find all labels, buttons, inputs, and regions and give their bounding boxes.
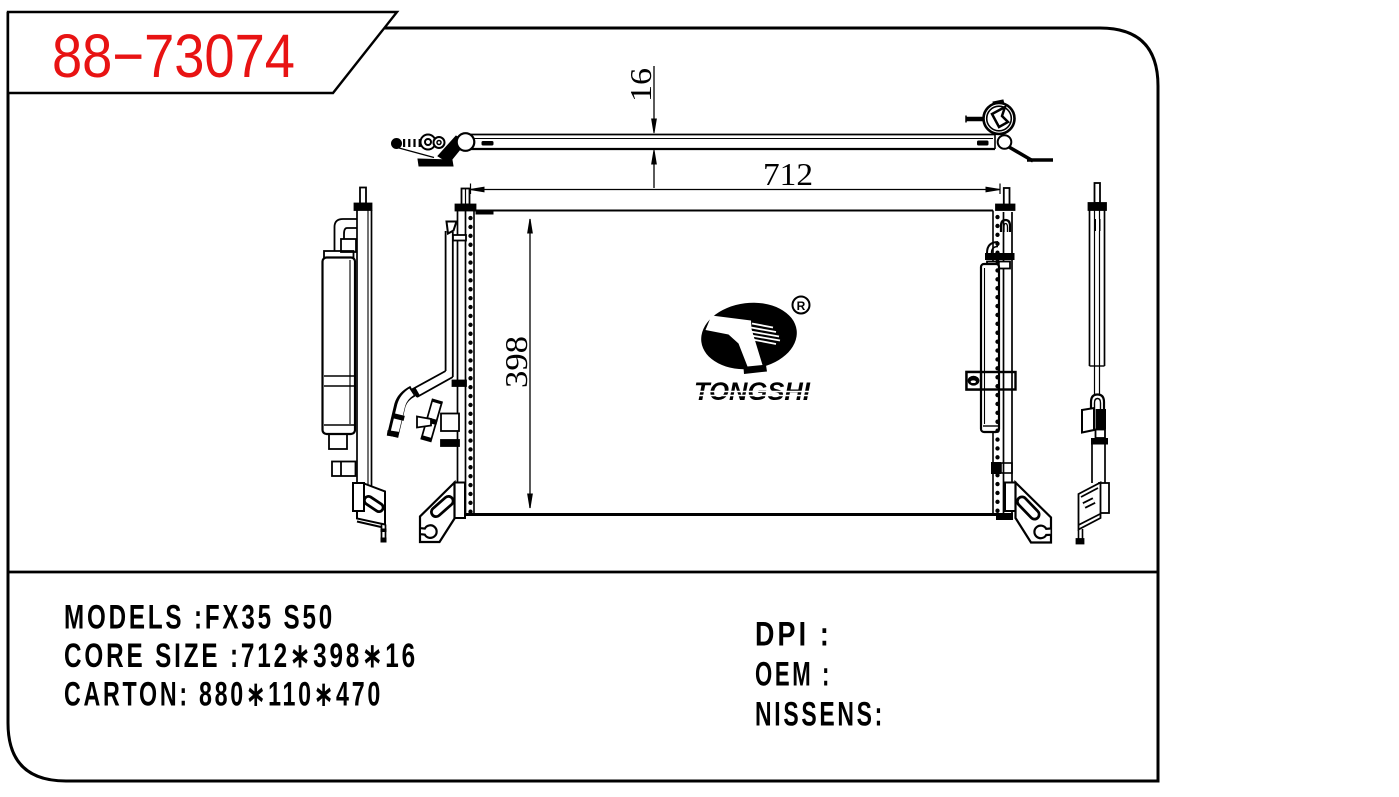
svg-text:CORE SIZE :712∗398∗16: CORE SIZE :712∗398∗16: [64, 637, 418, 675]
svg-text:MODELS :FX35 S50: MODELS :FX35 S50: [64, 599, 335, 637]
svg-text:88−73074: 88−73074: [52, 22, 295, 90]
svg-text:398: 398: [498, 336, 534, 388]
svg-text:OEM :: OEM :: [755, 656, 832, 694]
svg-text:NISSENS:: NISSENS:: [755, 696, 885, 734]
svg-text:DPI :: DPI :: [755, 616, 832, 654]
svg-text:712: 712: [763, 156, 813, 192]
svg-text:16: 16: [623, 68, 658, 102]
svg-text:CARTON: 880∗110∗470: CARTON: 880∗110∗470: [64, 676, 383, 714]
svg-text:R: R: [797, 299, 806, 313]
